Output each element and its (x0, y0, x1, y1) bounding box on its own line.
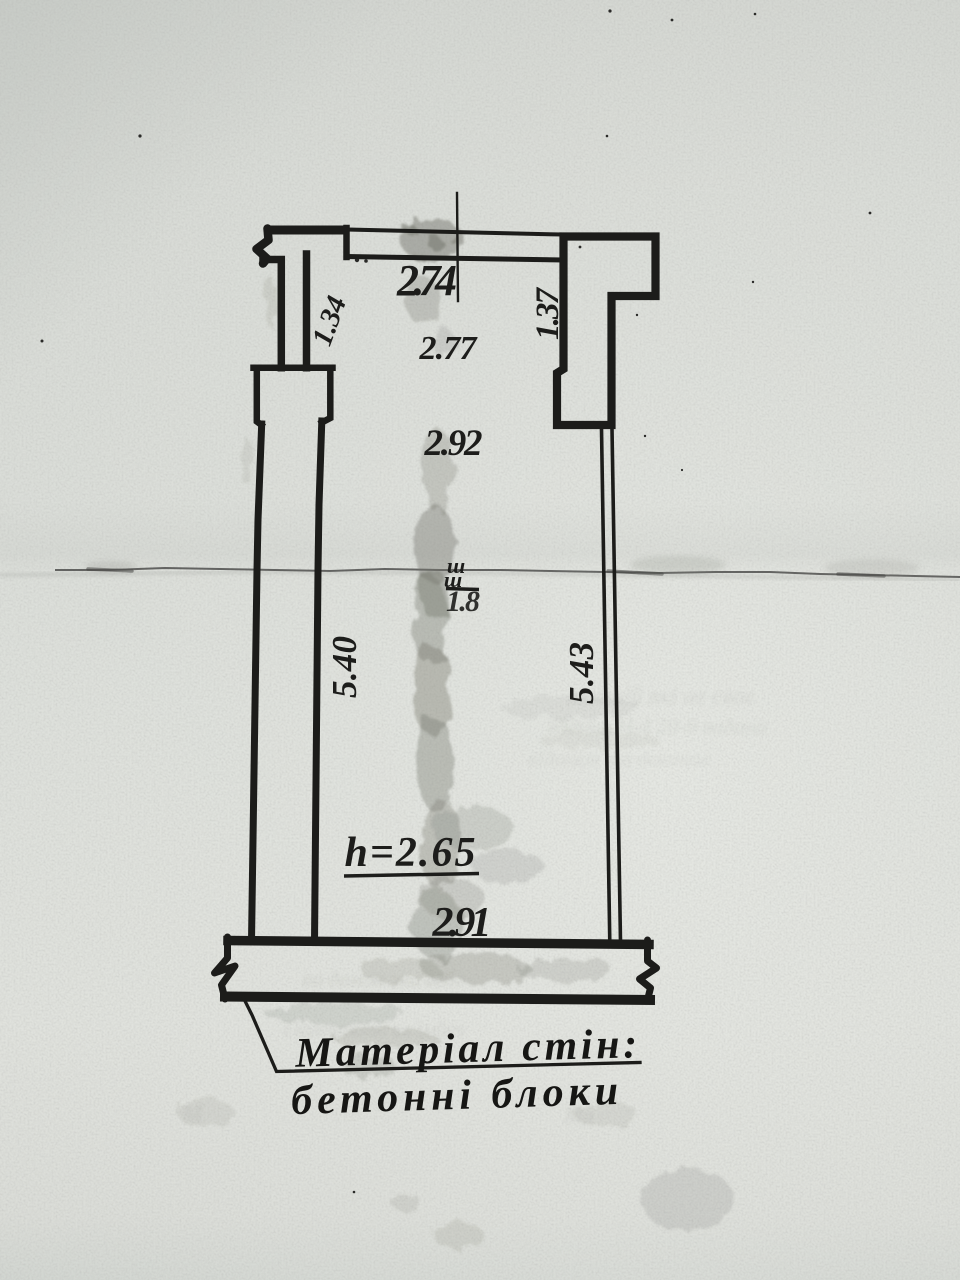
svg-text:2.74: 2.74 (396, 256, 457, 305)
svg-text:1.8: 1.8 (446, 585, 480, 618)
svg-text:5.43: 5.43 (562, 642, 601, 704)
svg-text:1.37: 1.37 (530, 287, 566, 341)
svg-text:по дележ зни вебе: по дележ зни вебе (302, 967, 464, 991)
svg-text:2.91: 2.91 (432, 900, 492, 946)
svg-text:h=2.65: h=2.65 (345, 830, 476, 876)
svg-text:М: М (181, 1101, 204, 1127)
svg-text:відомих та виконав: відомих та виконав (528, 746, 711, 771)
svg-text:вддння Н-4 20-9 видана: вддння Н-4 20-9 видана (548, 714, 767, 739)
svg-text:2.92: 2.92 (424, 423, 483, 464)
svg-text:5.40: 5.40 (325, 636, 364, 698)
svg-text:2.77: 2.77 (419, 330, 479, 367)
